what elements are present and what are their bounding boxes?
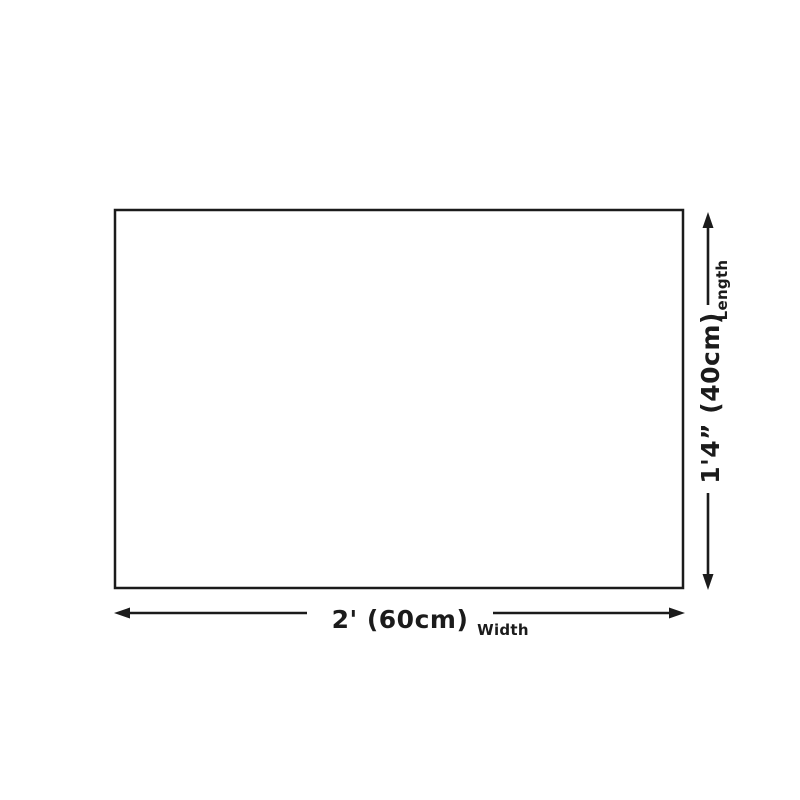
arrow-left-icon xyxy=(114,608,130,619)
width-dimension: 2' (60cm) Width xyxy=(114,605,685,639)
length-dimension-label: Length xyxy=(713,260,731,321)
arrow-right-icon xyxy=(669,608,685,619)
length-dimension-value: 1'4” (40cm) xyxy=(696,312,725,484)
product-outline-rectangle xyxy=(115,210,683,588)
length-dimension: Length 1'4” (40cm) xyxy=(696,212,731,590)
width-dimension-value: 2' (60cm) xyxy=(332,605,469,634)
arrow-up-icon xyxy=(703,212,714,228)
width-dimension-label: Width xyxy=(477,621,529,639)
arrow-down-icon xyxy=(703,574,714,590)
dimension-diagram-svg: Length 1'4” (40cm) 2' (60cm) Width xyxy=(0,0,800,800)
dimension-diagram: Length 1'4” (40cm) 2' (60cm) Width xyxy=(0,0,800,800)
